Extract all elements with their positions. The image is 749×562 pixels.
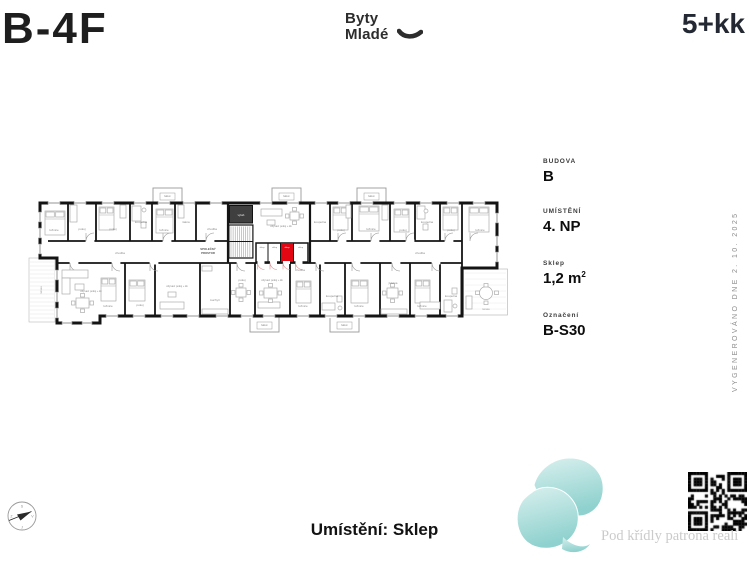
info-label: Označení — [543, 312, 586, 319]
room-label: balkon — [341, 325, 348, 327]
room-label: sklep — [272, 247, 278, 249]
room-label: chodba — [295, 268, 305, 272]
room-label: koupelna — [445, 294, 458, 298]
room-label: balkon — [368, 196, 375, 198]
room-label: koupelna — [314, 220, 327, 224]
room-label: koupelna — [421, 220, 434, 224]
room-label: ložnice — [475, 228, 485, 232]
room-label: kuchyň — [210, 298, 220, 302]
room-label: výtah — [238, 213, 245, 217]
floor-plan: ložnicepokojpokojkoupelnaložnicešatnacho… — [0, 0, 749, 562]
location-caption: Umístění: Sklep — [0, 520, 749, 540]
room-label: pokoj — [78, 227, 86, 231]
room-label: sklep — [259, 247, 265, 249]
unit-code-title: B-4F — [2, 4, 108, 54]
room-label: pokoj — [136, 303, 144, 307]
room-label: šatna — [182, 220, 190, 224]
room-label: balkon — [164, 196, 171, 198]
room-label: balkon — [261, 325, 268, 327]
room-label: terasa — [39, 286, 43, 294]
compass-east: V — [31, 515, 34, 519]
layout-badge: 5+kk — [682, 8, 745, 40]
info-item-building: BUDOVA B — [543, 158, 576, 185]
info-label: BUDOVA — [543, 158, 576, 165]
brand-logo: Byty Mladé — [345, 11, 389, 43]
brand-line1: Byty — [345, 11, 389, 27]
room-label: obývací pokoj + kk — [80, 289, 102, 293]
room-label: ložnice — [159, 228, 169, 232]
brand-line2: Mladé — [345, 27, 389, 43]
room-label: obývací pokoj + kk — [166, 284, 188, 288]
room-label: chodba — [115, 251, 125, 255]
room-label: balkon — [283, 196, 290, 198]
room-label: obývací pokoj + kk — [261, 278, 283, 282]
brand-swoosh-icon — [397, 28, 423, 44]
info-item-floor: UMÍSTĚNÍ 4. NP — [543, 208, 581, 235]
info-value: 4. NP — [543, 218, 581, 235]
room-label: sklep — [298, 247, 304, 249]
compass-west: Z — [10, 515, 13, 519]
room-label: ložnice — [298, 304, 308, 308]
info-item-designation: Označení B-S30 — [543, 312, 586, 339]
room-label: ložnice — [366, 227, 376, 231]
info-value: B-S30 — [543, 322, 586, 339]
compass-north: S — [21, 505, 24, 509]
room-label: ložnice — [354, 304, 364, 308]
room-label: jídelna — [388, 281, 398, 285]
room-label: terasa — [482, 307, 490, 311]
room-label: obývací pokoj + kk — [270, 224, 292, 228]
room-label: pokoj — [109, 227, 117, 231]
room-label: chodba — [415, 251, 425, 255]
room-label: pokoj — [399, 228, 407, 232]
info-label: Sklep — [543, 260, 586, 267]
room-label: sklep — [284, 247, 290, 249]
info-value: B — [543, 168, 576, 185]
info-label: UMÍSTĚNÍ — [543, 208, 581, 215]
generated-date-note: VYGENEROVÁNO DNE 2. 10. 2025 — [732, 212, 739, 392]
room-label: koupelna — [326, 294, 339, 298]
info-item-cellar-area: Sklep 1,2 m2 — [543, 260, 586, 287]
room-label: PROSTOR — [201, 251, 215, 255]
room-label: pokoj — [337, 228, 345, 232]
room-label: chodba — [207, 227, 217, 231]
room-label: ložnice — [417, 304, 427, 308]
room-label: pokoj — [238, 278, 246, 282]
room-label: koupelna — [135, 220, 148, 224]
room-label: pokoj — [447, 228, 455, 232]
room-label: ložnice — [49, 228, 59, 232]
room-label: ložnice — [103, 304, 113, 308]
info-value: 1,2 m2 — [543, 270, 586, 287]
